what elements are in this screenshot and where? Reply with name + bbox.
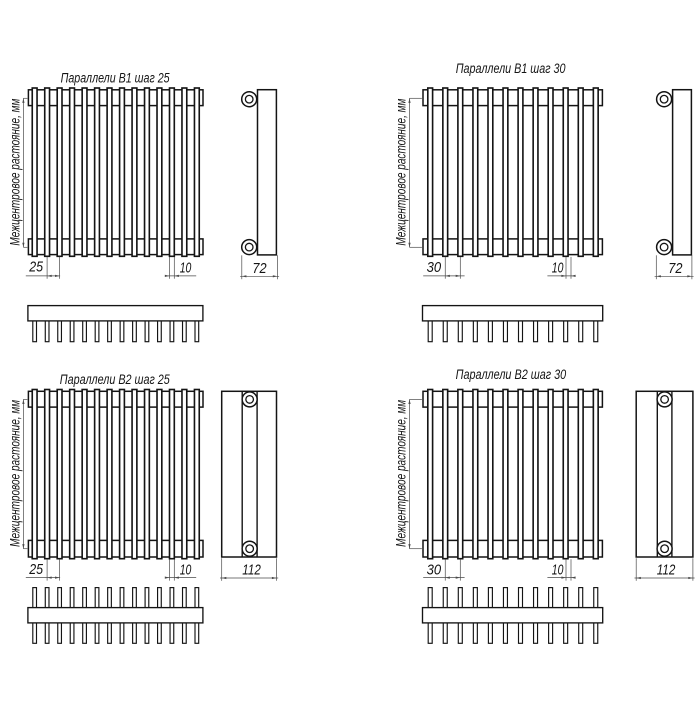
svg-text:112: 112: [657, 562, 676, 578]
svg-text:30: 30: [427, 260, 442, 276]
svg-text:25: 25: [28, 562, 43, 578]
svg-text:112: 112: [242, 562, 261, 578]
svg-text:30: 30: [427, 563, 442, 579]
svg-text:Межцентровое растояние, мм: Межцентровое растояние, мм: [393, 399, 408, 546]
svg-text:Параллели В2 шаг 25: Параллели В2 шаг 25: [60, 372, 170, 387]
svg-text:25: 25: [28, 260, 43, 276]
svg-text:72: 72: [668, 261, 683, 277]
svg-text:Параллели В2 шаг 30: Параллели В2 шаг 30: [456, 367, 567, 382]
svg-text:Параллели В1 шаг 30: Параллели В1 шаг 30: [456, 61, 566, 76]
svg-text:Межцентровое растояние, мм: Межцентровое растояние, мм: [8, 98, 23, 245]
svg-text:10: 10: [552, 563, 564, 579]
svg-text:Межцентровое растояние, мм: Межцентровое растояние, мм: [8, 399, 23, 546]
svg-text:10: 10: [552, 260, 564, 276]
svg-text:10: 10: [180, 260, 192, 276]
svg-text:10: 10: [180, 563, 192, 579]
svg-text:Параллели В1 шаг 25: Параллели В1 шаг 25: [61, 70, 170, 85]
svg-text:Межцентровое растояние, мм: Межцентровое растояние, мм: [393, 98, 408, 245]
svg-text:72: 72: [252, 261, 267, 277]
